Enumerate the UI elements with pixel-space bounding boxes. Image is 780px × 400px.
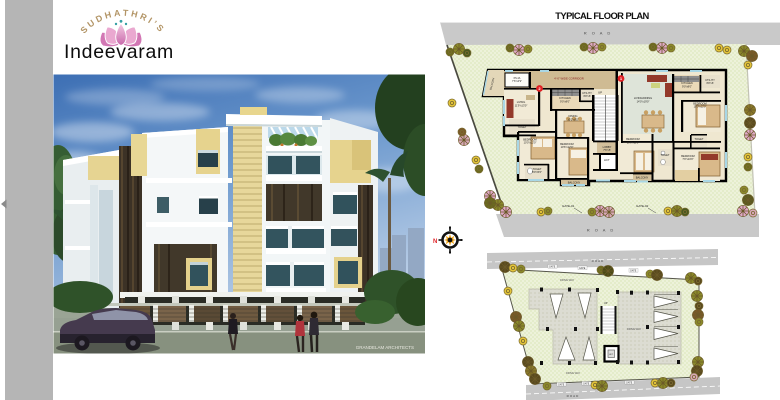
svg-text:GRANDELAM ARCHITECTS: GRANDELAM ARCHITECTS xyxy=(356,345,414,350)
svg-text:ROAD: ROAD xyxy=(592,259,605,263)
svg-text:9'0"x8'0": 9'0"x8'0" xyxy=(560,100,570,104)
svg-text:LIFT: LIFT xyxy=(604,158,610,162)
svg-text:UP: UP xyxy=(598,91,602,95)
svg-text:4'-6" WIDE CORRIDOR: 4'-6" WIDE CORRIDOR xyxy=(554,77,584,81)
svg-text:BALCONY: BALCONY xyxy=(636,176,649,180)
svg-text:TOILET: TOILET xyxy=(660,153,669,157)
svg-text:BALCONY: BALCONY xyxy=(568,181,581,185)
svg-text:LIVING: LIVING xyxy=(517,100,526,104)
svg-text:BEDROOM: BEDROOM xyxy=(626,137,639,141)
svg-text:GATE: GATE xyxy=(558,384,565,387)
svg-text:11'9"x13'0": 11'9"x13'0" xyxy=(515,104,528,108)
svg-text:R O A D: R O A D xyxy=(584,31,612,36)
svg-text:LIVING/DINING: LIVING/DINING xyxy=(634,96,652,100)
svg-text:DINING: DINING xyxy=(568,114,577,118)
svg-text:TOILET: TOILET xyxy=(517,125,526,129)
svg-text:8'0"x5'0": 8'0"x5'0" xyxy=(532,170,542,174)
svg-text:Indeevaram: Indeevaram xyxy=(64,41,174,63)
svg-text:GATE: GATE xyxy=(626,382,633,385)
svg-text:DRIVE WAY: DRIVE WAY xyxy=(627,327,642,331)
svg-text:UP: UP xyxy=(604,302,608,305)
svg-text:TYPICAL FLOOR PLAN: TYPICAL FLOOR PLAN xyxy=(555,10,649,21)
svg-text:DRIVE WAY: DRIVE WAY xyxy=(566,371,581,375)
svg-text:10'0"x8'0": 10'0"x8'0" xyxy=(567,118,578,122)
svg-text:KITCHEN: KITCHEN xyxy=(681,81,693,85)
svg-text:TOILET: TOILET xyxy=(694,137,703,141)
svg-text:7'0"x10'0": 7'0"x10'0" xyxy=(682,157,693,161)
svg-text:9'0"x8'0": 9'0"x8'0" xyxy=(682,85,692,89)
svg-text:7'6"x5': 7'6"x5' xyxy=(603,148,611,152)
svg-text:10'0"x11'0": 10'0"x11'0" xyxy=(627,141,640,145)
svg-text:7'6"x4'9": 7'6"x4'9" xyxy=(512,79,522,83)
svg-text:ROAD: ROAD xyxy=(567,394,580,398)
svg-text:KITCHEN: KITCHEN xyxy=(559,96,571,100)
svg-text:GATE-02: GATE-02 xyxy=(636,204,649,208)
svg-text:3'9"x6': 3'9"x6' xyxy=(583,94,591,98)
svg-text:10'0"x12'0": 10'0"x12'0" xyxy=(524,141,537,145)
svg-text:3'9"x6': 3'9"x6' xyxy=(706,81,714,85)
svg-text:14'0"x19'0": 14'0"x19'0" xyxy=(637,100,650,104)
svg-text:GATE: GATE xyxy=(579,267,586,270)
svg-text:GATE: GATE xyxy=(630,270,637,273)
svg-text:GATE: GATE xyxy=(549,266,556,269)
svg-text:10'0"x12'0": 10'0"x12'0" xyxy=(694,105,707,109)
svg-text:GATE-01: GATE-01 xyxy=(562,204,575,208)
svg-text:N: N xyxy=(433,239,437,245)
svg-text:R O A D: R O A D xyxy=(587,228,615,233)
svg-text:GATE: GATE xyxy=(583,383,590,386)
svg-text:DRIVE WAY: DRIVE WAY xyxy=(560,278,575,282)
svg-text:10'6"x12'0": 10'6"x12'0" xyxy=(561,145,574,149)
